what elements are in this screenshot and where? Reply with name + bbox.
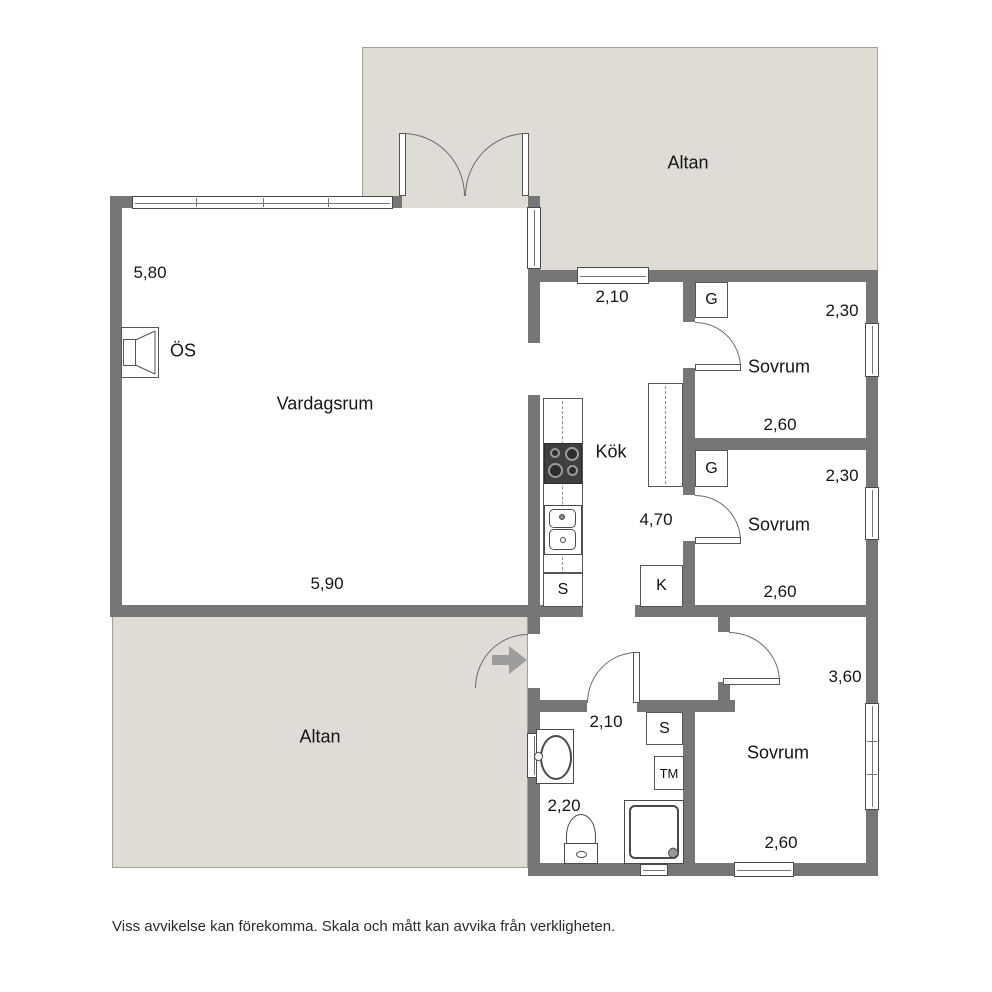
wall-segment xyxy=(683,368,695,495)
washbasin-bowl xyxy=(540,735,572,780)
kitchen-sink-icon xyxy=(544,505,582,555)
wall-segment xyxy=(683,282,695,322)
wall-segment xyxy=(866,270,878,323)
cabinet-centerline xyxy=(665,386,666,484)
door-leaf xyxy=(522,133,529,196)
dim-badrum-height: 2,20 xyxy=(547,796,580,816)
window xyxy=(132,196,393,209)
room-label-vardagsrum: Vardagsrum xyxy=(277,394,374,415)
washing-machine-label: TM xyxy=(660,766,679,781)
wall-segment xyxy=(110,196,122,617)
door-arc xyxy=(587,652,637,703)
dim-sovrum2-width: 2,60 xyxy=(763,582,796,602)
window-frame-line xyxy=(580,276,646,277)
dim-vardagsrum-width: 5,90 xyxy=(310,574,343,594)
dim-kok-length: 4,70 xyxy=(639,510,672,530)
room-label-sovrum3: Sovrum xyxy=(747,743,809,764)
window-mullion xyxy=(196,198,197,207)
dim-sovrum1-height: 2,30 xyxy=(825,301,858,321)
window-mullion xyxy=(263,198,264,207)
stove-burner xyxy=(548,463,563,478)
kitchen-cabinet-box: S xyxy=(543,573,583,607)
wall-segment xyxy=(866,810,878,863)
disclaimer-text: Viss avvikelse kan förekomma. Skala och … xyxy=(112,918,615,935)
stove-burner xyxy=(567,465,578,476)
entry-arrow-icon xyxy=(492,655,509,665)
window-frame-line xyxy=(534,210,535,266)
floor-plan: S K G G S TM Altan Altan Vardagsrum 5,80… xyxy=(0,0,992,992)
cabinet-label: S xyxy=(558,581,569,599)
dim-kok-window: 2,10 xyxy=(595,287,628,307)
fireplace-label: ÖS xyxy=(170,341,196,362)
fridge-box: K xyxy=(640,565,683,607)
door-leaf xyxy=(633,652,640,703)
stove-burner xyxy=(550,448,560,458)
room-label-altan-bottom: Altan xyxy=(299,727,340,748)
wall-segment xyxy=(528,863,878,876)
window xyxy=(640,864,668,876)
wardrobe-box: G xyxy=(695,450,728,487)
window xyxy=(865,703,879,810)
window xyxy=(865,487,879,540)
stove-burner xyxy=(565,447,579,461)
dim-sovrum2-height: 2,30 xyxy=(825,466,858,486)
wall-segment xyxy=(110,605,583,617)
wall-segment xyxy=(393,196,402,208)
shower-icon xyxy=(624,800,684,864)
wardrobe-label: G xyxy=(705,460,717,478)
dim-sovrum3-width: 2,60 xyxy=(764,833,797,853)
wall-segment xyxy=(528,700,587,712)
door-leaf xyxy=(695,537,741,544)
window-frame-line xyxy=(872,490,873,537)
room-label-altan-top: Altan xyxy=(667,153,708,174)
window-frame-line xyxy=(872,706,873,807)
sink-faucet xyxy=(559,514,565,520)
wall-segment xyxy=(528,688,540,700)
wall-segment xyxy=(528,395,540,605)
wall-segment xyxy=(683,541,695,605)
window-mullion xyxy=(867,774,877,775)
wall-segment xyxy=(718,682,730,712)
wall-segment xyxy=(718,617,730,632)
wardrobe-box: G xyxy=(695,282,728,318)
sink-drain xyxy=(560,537,566,543)
dim-sovrum3-height: 3,60 xyxy=(828,667,861,687)
dim-vardagsrum-height: 5,80 xyxy=(133,263,166,283)
wall-segment xyxy=(528,617,540,634)
window-mullion xyxy=(867,741,877,742)
wall-segment xyxy=(866,377,878,487)
window-frame-line xyxy=(643,870,665,871)
window xyxy=(865,323,879,377)
door-leaf xyxy=(399,133,406,196)
toilet-button xyxy=(576,851,587,858)
window xyxy=(577,267,649,284)
wall-segment xyxy=(540,270,578,282)
window-frame-line xyxy=(737,870,791,871)
door-arc xyxy=(695,495,741,541)
washbasin-icon xyxy=(536,729,574,784)
door-leaf xyxy=(723,678,780,685)
window xyxy=(527,207,541,269)
wall-segment xyxy=(528,268,540,343)
fridge-label: K xyxy=(656,577,667,595)
door-leaf xyxy=(695,364,741,371)
room-label-sovrum1: Sovrum xyxy=(748,357,810,378)
bathroom-closet-box: S xyxy=(646,712,683,745)
room-label-kok: Kök xyxy=(595,442,626,463)
terrace-door-patch xyxy=(402,196,528,208)
dim-sovrum1-width: 2,60 xyxy=(763,415,796,435)
terrace-top-lower xyxy=(540,196,878,270)
entry-arrow-icon xyxy=(509,646,527,674)
door-arc xyxy=(695,322,741,368)
wall-segment xyxy=(648,270,878,282)
room-label-sovrum2: Sovrum xyxy=(748,515,810,536)
window xyxy=(734,862,794,877)
stove-icon xyxy=(544,443,582,484)
wall-segment xyxy=(695,438,878,450)
window-frame-line xyxy=(872,326,873,374)
door-arc xyxy=(729,632,780,682)
washbasin-faucet xyxy=(534,752,543,761)
washing-machine-box: TM xyxy=(654,756,684,790)
fireplace-icon xyxy=(121,327,159,378)
window-mullion xyxy=(328,198,329,207)
toilet-tank xyxy=(564,843,598,864)
wall-segment xyxy=(866,540,878,703)
closet-label: S xyxy=(659,720,670,738)
wardrobe-label: G xyxy=(705,291,717,309)
wall-segment xyxy=(528,778,540,863)
dim-badrum-width: 2,10 xyxy=(589,712,622,732)
wall-segment xyxy=(683,712,695,863)
